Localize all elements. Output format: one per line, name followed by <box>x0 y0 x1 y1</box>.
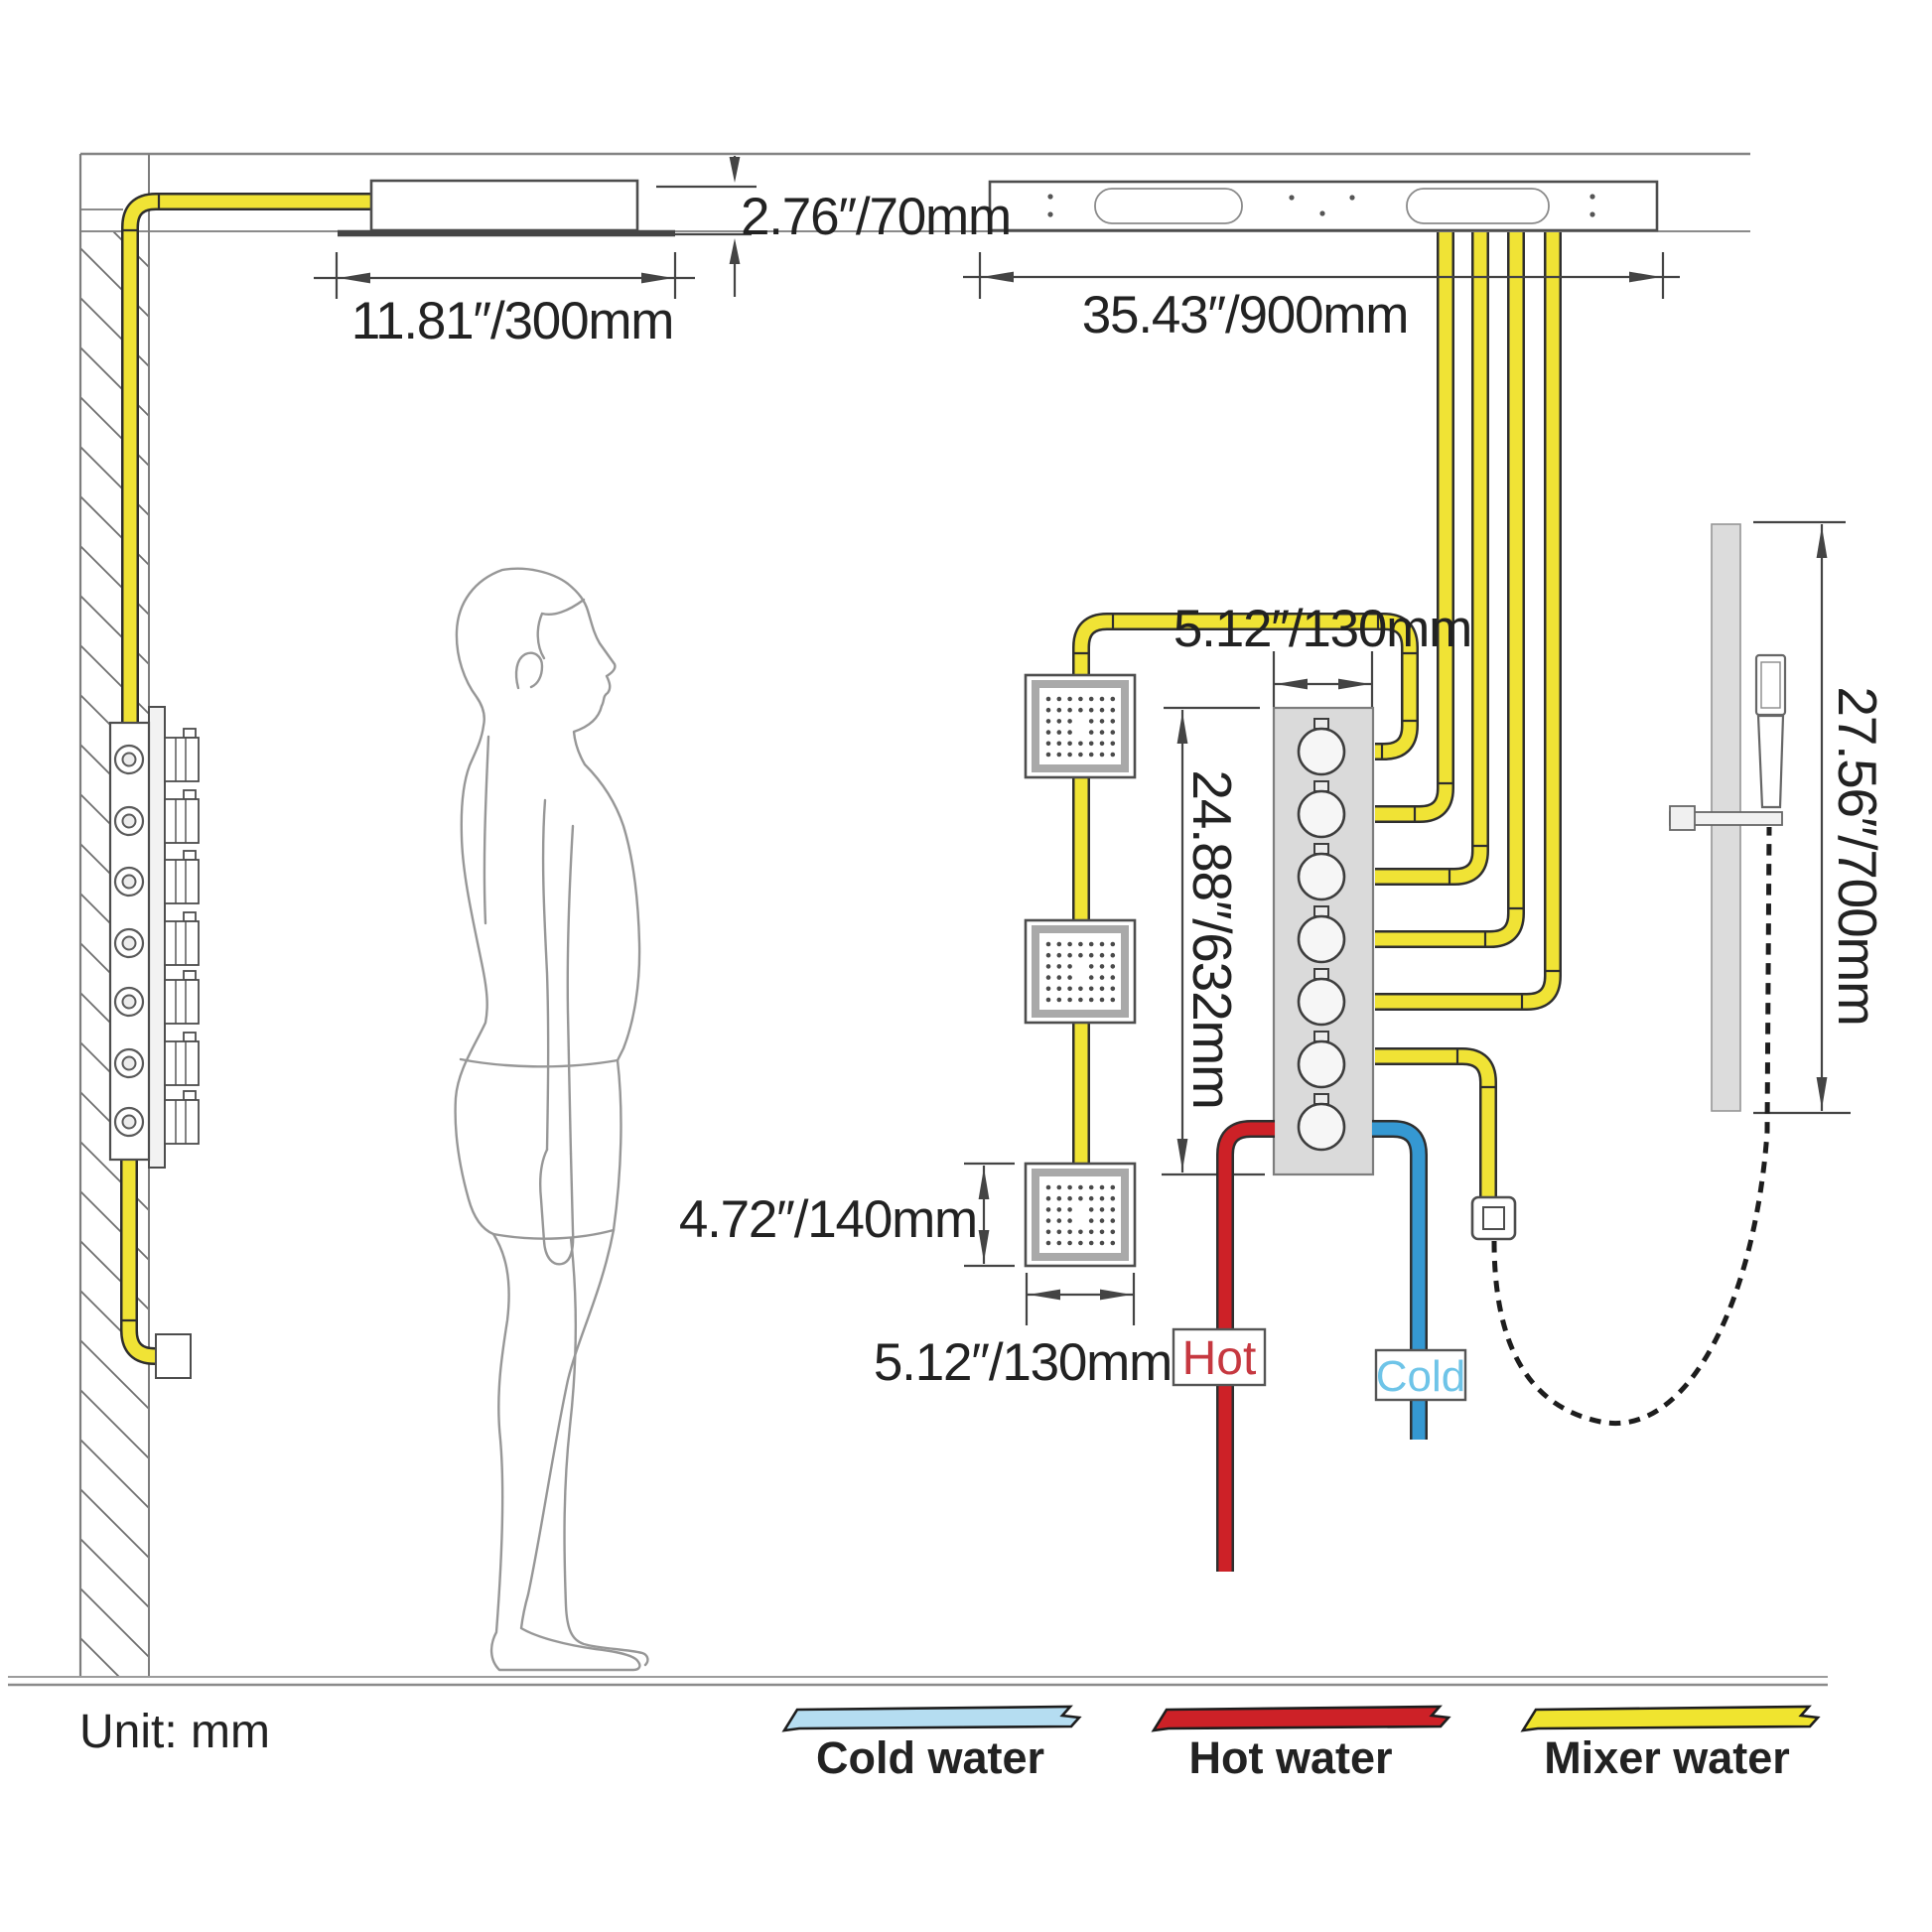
svg-text:27.56″/700mm: 27.56″/700mm <box>1827 686 1888 1025</box>
svg-text:4.72″/140mm: 4.72″/140mm <box>679 1190 977 1249</box>
svg-text:2.76″/70mm: 2.76″/70mm <box>741 188 1011 246</box>
svg-text:5.12″/130mm: 5.12″/130mm <box>1173 600 1471 658</box>
svg-text:Cold water: Cold water <box>816 1732 1044 1783</box>
svg-text:Cold: Cold <box>1376 1352 1466 1401</box>
svg-text:Mixer water: Mixer water <box>1544 1732 1790 1783</box>
svg-text:Unit: mm: Unit: mm <box>79 1706 270 1758</box>
svg-text:Hot: Hot <box>1182 1332 1257 1385</box>
svg-text:11.81″/300mm: 11.81″/300mm <box>351 292 674 350</box>
svg-text:24.88″/632mm: 24.88″/632mm <box>1181 769 1243 1108</box>
svg-text:35.43″/900mm: 35.43″/900mm <box>1082 286 1408 345</box>
svg-text:Hot water: Hot water <box>1188 1732 1392 1783</box>
svg-text:5.12″/130mm: 5.12″/130mm <box>874 1333 1172 1392</box>
